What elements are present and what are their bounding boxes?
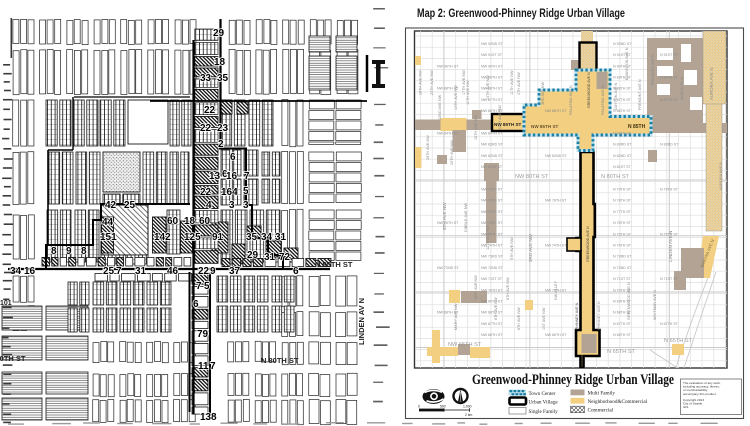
svg-text:5: 5 bbox=[243, 186, 249, 197]
svg-text:25: 25 bbox=[103, 266, 115, 277]
svg-text:22: 22 bbox=[204, 105, 216, 116]
svg-text:N 81ST ST: N 81ST ST bbox=[613, 165, 632, 169]
svg-text:18: 18 bbox=[184, 216, 196, 227]
svg-text:1,000: 1,000 bbox=[463, 405, 472, 409]
svg-text:N 91ST ST: N 91ST ST bbox=[660, 53, 679, 57]
svg-text:NW 69TH ST: NW 69TH ST bbox=[481, 300, 503, 304]
svg-text:GREENWOOD AVE N: GREENWOOD AVE N bbox=[587, 72, 591, 108]
svg-text:164: 164 bbox=[221, 187, 238, 198]
svg-text:11TH AVE NW: 11TH AVE NW bbox=[510, 70, 514, 95]
svg-text:PHINNEY AVE N: PHINNEY AVE N bbox=[597, 301, 601, 330]
svg-text:NW 70TH ST: NW 70TH ST bbox=[481, 288, 503, 292]
svg-text:9: 9 bbox=[210, 266, 216, 277]
svg-text:NW 78TH ST: NW 78TH ST bbox=[545, 199, 567, 203]
svg-text:NW 65TH ST: NW 65TH ST bbox=[448, 342, 482, 348]
svg-text:5: 5 bbox=[204, 281, 210, 292]
svg-text:NW 82ND ST: NW 82ND ST bbox=[481, 154, 504, 158]
svg-text:11TH AVE NW: 11TH AVE NW bbox=[466, 80, 470, 105]
svg-text:N 66TH ST: N 66TH ST bbox=[613, 333, 632, 337]
svg-text:NW 71ST ST: NW 71ST ST bbox=[481, 277, 503, 281]
svg-text:72: 72 bbox=[279, 252, 291, 263]
svg-text:MARY AVE NW: MARY AVE NW bbox=[454, 303, 458, 330]
svg-text:NW ALLEY: NW ALLEY bbox=[554, 281, 558, 300]
svg-text:34: 34 bbox=[10, 266, 22, 277]
svg-text:EVANSTON AVE N: EVANSTON AVE N bbox=[625, 47, 629, 80]
svg-text:42: 42 bbox=[105, 200, 117, 211]
svg-text:N 74TH ST: N 74TH ST bbox=[613, 244, 632, 248]
svg-text:9: 9 bbox=[66, 246, 72, 257]
svg-text:Greenwood-Phinney Ridge Urban: Greenwood-Phinney Ridge Urban Village bbox=[472, 372, 674, 388]
svg-text:20TH AVE NW: 20TH AVE NW bbox=[450, 140, 454, 165]
svg-text:Urban Village: Urban Village bbox=[529, 400, 559, 406]
svg-text:15TH AVE NW: 15TH AVE NW bbox=[474, 115, 478, 140]
svg-text:NW 66TH ST: NW 66TH ST bbox=[481, 333, 503, 337]
svg-text:2 km: 2 km bbox=[465, 413, 473, 417]
svg-text:142: 142 bbox=[154, 232, 171, 243]
svg-text:44: 44 bbox=[102, 217, 114, 228]
svg-text:12TH AVE NW: 12TH AVE NW bbox=[486, 225, 490, 250]
svg-text:Town Center: Town Center bbox=[529, 391, 556, 397]
svg-text:500: 500 bbox=[440, 405, 446, 409]
svg-text:13: 13 bbox=[209, 171, 221, 182]
svg-text:N 85TH ST: N 85TH ST bbox=[315, 260, 353, 269]
svg-text:NW 74TH ST: NW 74TH ST bbox=[481, 244, 503, 248]
svg-text:33: 33 bbox=[200, 73, 212, 84]
svg-text:N 71ST ST: N 71ST ST bbox=[613, 277, 632, 281]
svg-text:31: 31 bbox=[275, 232, 287, 243]
svg-text:N 87TH ST: N 87TH ST bbox=[660, 98, 679, 102]
svg-text:NW 82ND ST: NW 82ND ST bbox=[545, 154, 568, 158]
svg-text:accompany this product.: accompany this product. bbox=[683, 392, 717, 396]
svg-text:NW 75TH ST: NW 75TH ST bbox=[481, 232, 503, 236]
svg-text:N 79TH ST: N 79TH ST bbox=[660, 188, 679, 192]
svg-text:N 76TH ST: N 76TH ST bbox=[613, 221, 632, 225]
svg-text:N 83RD ST: N 83RD ST bbox=[660, 143, 679, 147]
svg-text:8TH AVE NW: 8TH AVE NW bbox=[494, 297, 498, 320]
svg-text:34: 34 bbox=[261, 232, 273, 243]
svg-text:NW 72ND ST: NW 72ND ST bbox=[437, 266, 460, 270]
svg-text:14TH AVE NW: 14TH AVE NW bbox=[486, 75, 490, 100]
svg-text:28TH AVE NW: 28TH AVE NW bbox=[419, 70, 423, 95]
svg-text:N 80TH ST: N 80TH ST bbox=[601, 174, 630, 180]
svg-text:N 84TH ST: N 84TH ST bbox=[613, 132, 632, 136]
svg-text:60: 60 bbox=[199, 216, 211, 227]
svg-text:N 67TH ST: N 67TH ST bbox=[660, 322, 679, 326]
svg-text:NW 72ND ST: NW 72ND ST bbox=[481, 266, 504, 270]
svg-text:6TH AVE NW: 6TH AVE NW bbox=[517, 307, 521, 330]
svg-text:AURORA AVE N: AURORA AVE N bbox=[709, 68, 714, 100]
svg-text:22: 22 bbox=[198, 266, 210, 277]
svg-text:101: 101 bbox=[0, 300, 12, 307]
svg-text:NW 91ST ST: NW 91ST ST bbox=[481, 53, 503, 57]
svg-text:PHINNEY AVE N: PHINNEY AVE N bbox=[575, 302, 579, 330]
svg-text:7: 7 bbox=[210, 361, 216, 372]
svg-text:8: 8 bbox=[81, 246, 87, 257]
svg-text:18: 18 bbox=[214, 57, 226, 68]
svg-text:NW 78TH ST: NW 78TH ST bbox=[481, 199, 503, 203]
svg-text:LINDEN AVE N: LINDEN AVE N bbox=[668, 231, 673, 262]
svg-text:35: 35 bbox=[246, 232, 258, 243]
svg-text:DAYTON AVE N: DAYTON AVE N bbox=[614, 82, 618, 110]
svg-text:N 65TH ST: N 65TH ST bbox=[664, 338, 693, 344]
svg-text:29: 29 bbox=[247, 250, 259, 261]
svg-text:NW 77TH ST: NW 77TH ST bbox=[481, 210, 503, 214]
svg-text:22: 22 bbox=[200, 187, 212, 198]
svg-text:29: 29 bbox=[213, 28, 225, 39]
svg-text:NW 68TH ST: NW 68TH ST bbox=[481, 311, 503, 315]
svg-text:NW 90TH ST: NW 90TH ST bbox=[481, 64, 503, 68]
svg-text:1ST AVE NW: 1ST AVE NW bbox=[542, 307, 546, 330]
svg-text:3RD AVE NW: 3RD AVE NW bbox=[541, 81, 545, 105]
svg-text:N 75TH ST: N 75TH ST bbox=[613, 232, 632, 236]
svg-text:7: 7 bbox=[116, 266, 122, 277]
svg-text:NW 84TH ST: NW 84TH ST bbox=[481, 132, 503, 136]
svg-text:6TH AVE NW: 6TH AVE NW bbox=[506, 277, 510, 300]
svg-text:Neighborhood&Commercial: Neighborhood&Commercial bbox=[588, 399, 648, 405]
svg-text:Single Family: Single Family bbox=[529, 409, 559, 415]
svg-text:NW 86TH ST: NW 86TH ST bbox=[545, 109, 567, 113]
svg-text:WHITMAN AVE N: WHITMAN AVE N bbox=[653, 290, 657, 320]
svg-text:LINDEN AV N: LINDEN AV N bbox=[357, 298, 366, 345]
svg-text:31: 31 bbox=[264, 252, 276, 263]
svg-text:79: 79 bbox=[197, 329, 209, 340]
svg-text:60: 60 bbox=[167, 216, 179, 227]
svg-text:8: 8 bbox=[51, 246, 57, 257]
svg-text:NW 66TH ST: NW 66TH ST bbox=[545, 333, 567, 337]
svg-text:N 92ND ST: N 92ND ST bbox=[613, 42, 632, 46]
svg-text:37: 37 bbox=[229, 266, 241, 277]
svg-text:16: 16 bbox=[24, 266, 36, 277]
svg-text:NW 89TH ST: NW 89TH ST bbox=[481, 76, 503, 80]
svg-text:91: 91 bbox=[212, 232, 224, 243]
svg-text:NW 85TH ST: NW 85TH ST bbox=[531, 124, 559, 129]
svg-text:7: 7 bbox=[244, 171, 250, 182]
svg-text:N 77TH ST: N 77TH ST bbox=[613, 210, 632, 214]
svg-text:N 72ND ST: N 72ND ST bbox=[613, 266, 632, 270]
svg-text:GREENWOOD AVE N: GREENWOOD AVE N bbox=[627, 282, 631, 320]
svg-text:GIS: GIS bbox=[683, 405, 688, 409]
svg-text:125: 125 bbox=[184, 232, 201, 243]
svg-text:2: 2 bbox=[218, 139, 224, 150]
svg-text:NW 92ND ST: NW 92ND ST bbox=[481, 42, 504, 46]
svg-text:FREMONT AVE N: FREMONT AVE N bbox=[638, 79, 642, 110]
svg-text:N 78TH ST: N 78TH ST bbox=[613, 199, 632, 203]
svg-text:13: 13 bbox=[200, 412, 212, 423]
svg-text:25: 25 bbox=[124, 200, 136, 211]
svg-text:Commercial: Commercial bbox=[588, 408, 614, 414]
svg-text:N 71ST ST: N 71ST ST bbox=[660, 277, 679, 281]
svg-text:26TH AVE NW: 26TH AVE NW bbox=[426, 135, 430, 160]
svg-text:0: 0 bbox=[418, 405, 420, 409]
svg-text:3: 3 bbox=[243, 200, 249, 211]
svg-text:AURORA AVE N: AURORA AVE N bbox=[719, 162, 723, 190]
svg-text:NW 67TH ST: NW 67TH ST bbox=[481, 322, 503, 326]
svg-text:PALATINE AVE N: PALATINE AVE N bbox=[601, 85, 605, 115]
svg-text:NW 88TH ST: NW 88TH ST bbox=[481, 87, 503, 91]
svg-text:NW 74TH ST: NW 74TH ST bbox=[545, 244, 567, 248]
svg-text:NW 76TH ST: NW 76TH ST bbox=[481, 221, 503, 225]
svg-text:31: 31 bbox=[135, 266, 147, 277]
svg-text:DIBBLE AVE NW: DIBBLE AVE NW bbox=[464, 203, 468, 232]
svg-text:3RD AVE NW: 3RD AVE NW bbox=[528, 233, 533, 262]
svg-text:N 83RD ST: N 83RD ST bbox=[613, 143, 632, 147]
svg-text:22ND AVE NW: 22ND AVE NW bbox=[438, 94, 442, 120]
svg-text:NW 79TH ST: NW 79TH ST bbox=[481, 188, 503, 192]
svg-text:FREMONT AVE N: FREMONT AVE N bbox=[651, 54, 655, 85]
svg-text:6: 6 bbox=[293, 266, 299, 277]
svg-text:GREENWOOD AVE N: GREENWOOD AVE N bbox=[586, 226, 590, 262]
svg-text:12TH AVE NW: 12TH AVE NW bbox=[498, 105, 502, 130]
svg-text:NW 80TH ST: NW 80TH ST bbox=[515, 174, 549, 180]
svg-text:NW 83RD ST: NW 83RD ST bbox=[481, 143, 504, 147]
svg-text:46: 46 bbox=[167, 266, 179, 277]
svg-text:9TH AVE NW: 9TH AVE NW bbox=[510, 237, 514, 260]
svg-text:Map 2: Greenwood-Phinney Ridge: Map 2: Greenwood-Phinney Ridge Urban Vil… bbox=[417, 8, 625, 20]
svg-text:N 80TH ST: N 80TH ST bbox=[261, 356, 299, 365]
svg-text:151: 151 bbox=[100, 232, 117, 243]
svg-text:N 82ND ST: N 82ND ST bbox=[613, 154, 632, 158]
svg-text:8: 8 bbox=[211, 412, 217, 423]
svg-text:N 79TH ST: N 79TH ST bbox=[613, 188, 632, 192]
svg-text:23: 23 bbox=[217, 123, 229, 134]
svg-text:16: 16 bbox=[226, 171, 238, 182]
svg-text:4TH AVE NW: 4TH AVE NW bbox=[517, 72, 521, 95]
svg-text:ALBION PL N: ALBION PL N bbox=[680, 76, 684, 100]
svg-text:35: 35 bbox=[217, 73, 229, 84]
svg-text:14TH AVE NW: 14TH AVE NW bbox=[454, 85, 458, 110]
svg-text:NW 76TH ST: NW 76TH ST bbox=[437, 221, 459, 225]
svg-text:11: 11 bbox=[198, 361, 209, 372]
svg-text:N 85TH: N 85TH bbox=[628, 124, 646, 130]
svg-text:PALATINE AVE N: PALATINE AVE N bbox=[569, 85, 573, 115]
svg-text:24TH AVE NW: 24TH AVE NW bbox=[430, 70, 434, 95]
svg-text:NW 84TH ST: NW 84TH ST bbox=[437, 132, 459, 136]
svg-text:14TH AVE NW: 14TH AVE NW bbox=[474, 275, 478, 300]
svg-text:6: 6 bbox=[193, 299, 199, 310]
svg-text:N 89TH ST: N 89TH ST bbox=[660, 76, 679, 80]
svg-text:N 65TH ST: N 65TH ST bbox=[607, 349, 636, 355]
svg-text:N 73RD ST: N 73RD ST bbox=[613, 255, 632, 259]
svg-text:4: 4 bbox=[206, 200, 212, 211]
svg-text:Multi Family: Multi Family bbox=[588, 391, 616, 397]
svg-text:6: 6 bbox=[230, 152, 236, 163]
svg-text:22: 22 bbox=[200, 123, 212, 134]
svg-text:N 67TH ST: N 67TH ST bbox=[613, 322, 632, 326]
svg-text:NW 87TH ST: NW 87TH ST bbox=[481, 98, 503, 102]
svg-text:NW 90TH ST: NW 90TH ST bbox=[437, 64, 459, 68]
svg-text:3: 3 bbox=[229, 200, 235, 211]
svg-text:7: 7 bbox=[196, 281, 202, 292]
svg-text:8TH AVE NW: 8TH AVE NW bbox=[442, 202, 447, 230]
svg-text:NW 81ST ST: NW 81ST ST bbox=[481, 165, 503, 169]
svg-text:NW 73RD ST: NW 73RD ST bbox=[481, 255, 504, 259]
